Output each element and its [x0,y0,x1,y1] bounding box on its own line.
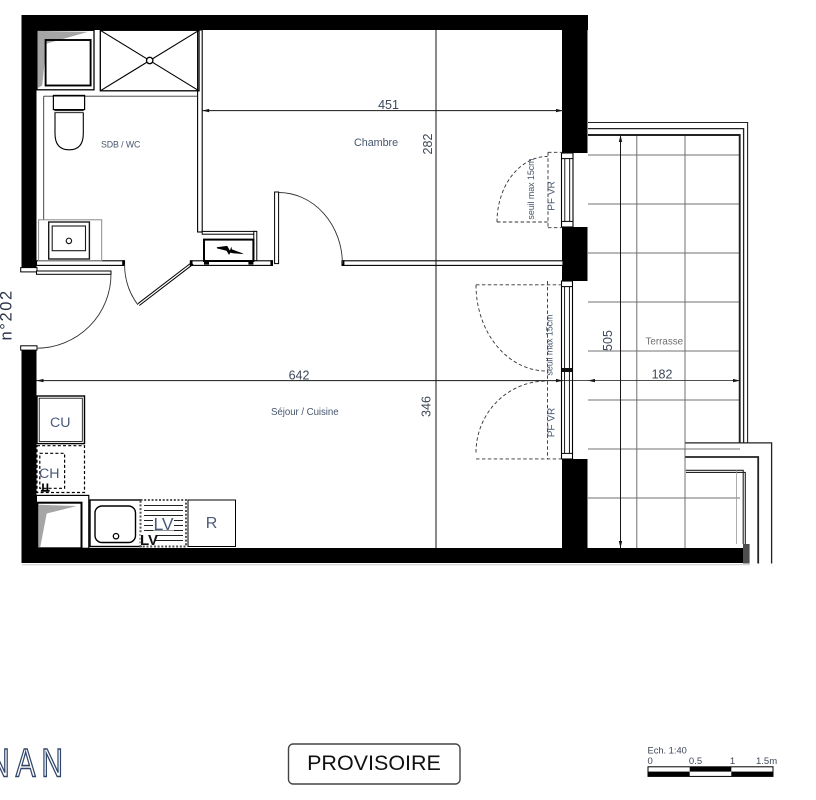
svg-text:451: 451 [378,98,399,112]
svg-text:NAN: NAN [0,741,69,785]
svg-text:1: 1 [730,756,735,767]
svg-text:282: 282 [421,134,435,155]
svg-text:0: 0 [648,756,653,767]
svg-text:505: 505 [601,330,615,351]
svg-text:Séjour / Cuisine: Séjour / Cuisine [271,407,339,418]
svg-text:LV: LV [153,514,173,534]
svg-text:Terrasse: Terrasse [646,336,684,347]
svg-text:0.5: 0.5 [689,756,702,767]
svg-text:1.5m: 1.5m [756,756,777,767]
svg-text:642: 642 [289,368,310,382]
svg-text:Chambre: Chambre [354,137,398,149]
svg-text:PF VR: PF VR [547,181,558,210]
svg-text:PROVISOIRE: PROVISOIRE [307,751,441,775]
svg-text:CH: CH [39,466,60,482]
svg-text:346: 346 [420,396,434,417]
svg-text:SDB / WC: SDB / WC [101,140,141,150]
svg-text:R: R [206,515,218,532]
svg-text:seuil max 15cm: seuil max 15cm [545,314,555,375]
svg-text:182: 182 [652,368,673,382]
svg-text:Ech. 1:40: Ech. 1:40 [648,746,687,756]
svg-text:PF VR: PF VR [547,408,558,437]
svg-text:CU: CU [50,415,71,431]
svg-text:seuil max 15cm: seuil max 15cm [526,158,536,219]
svg-text:n°202: n°202 [0,289,16,340]
svg-text:LV: LV [140,532,158,549]
